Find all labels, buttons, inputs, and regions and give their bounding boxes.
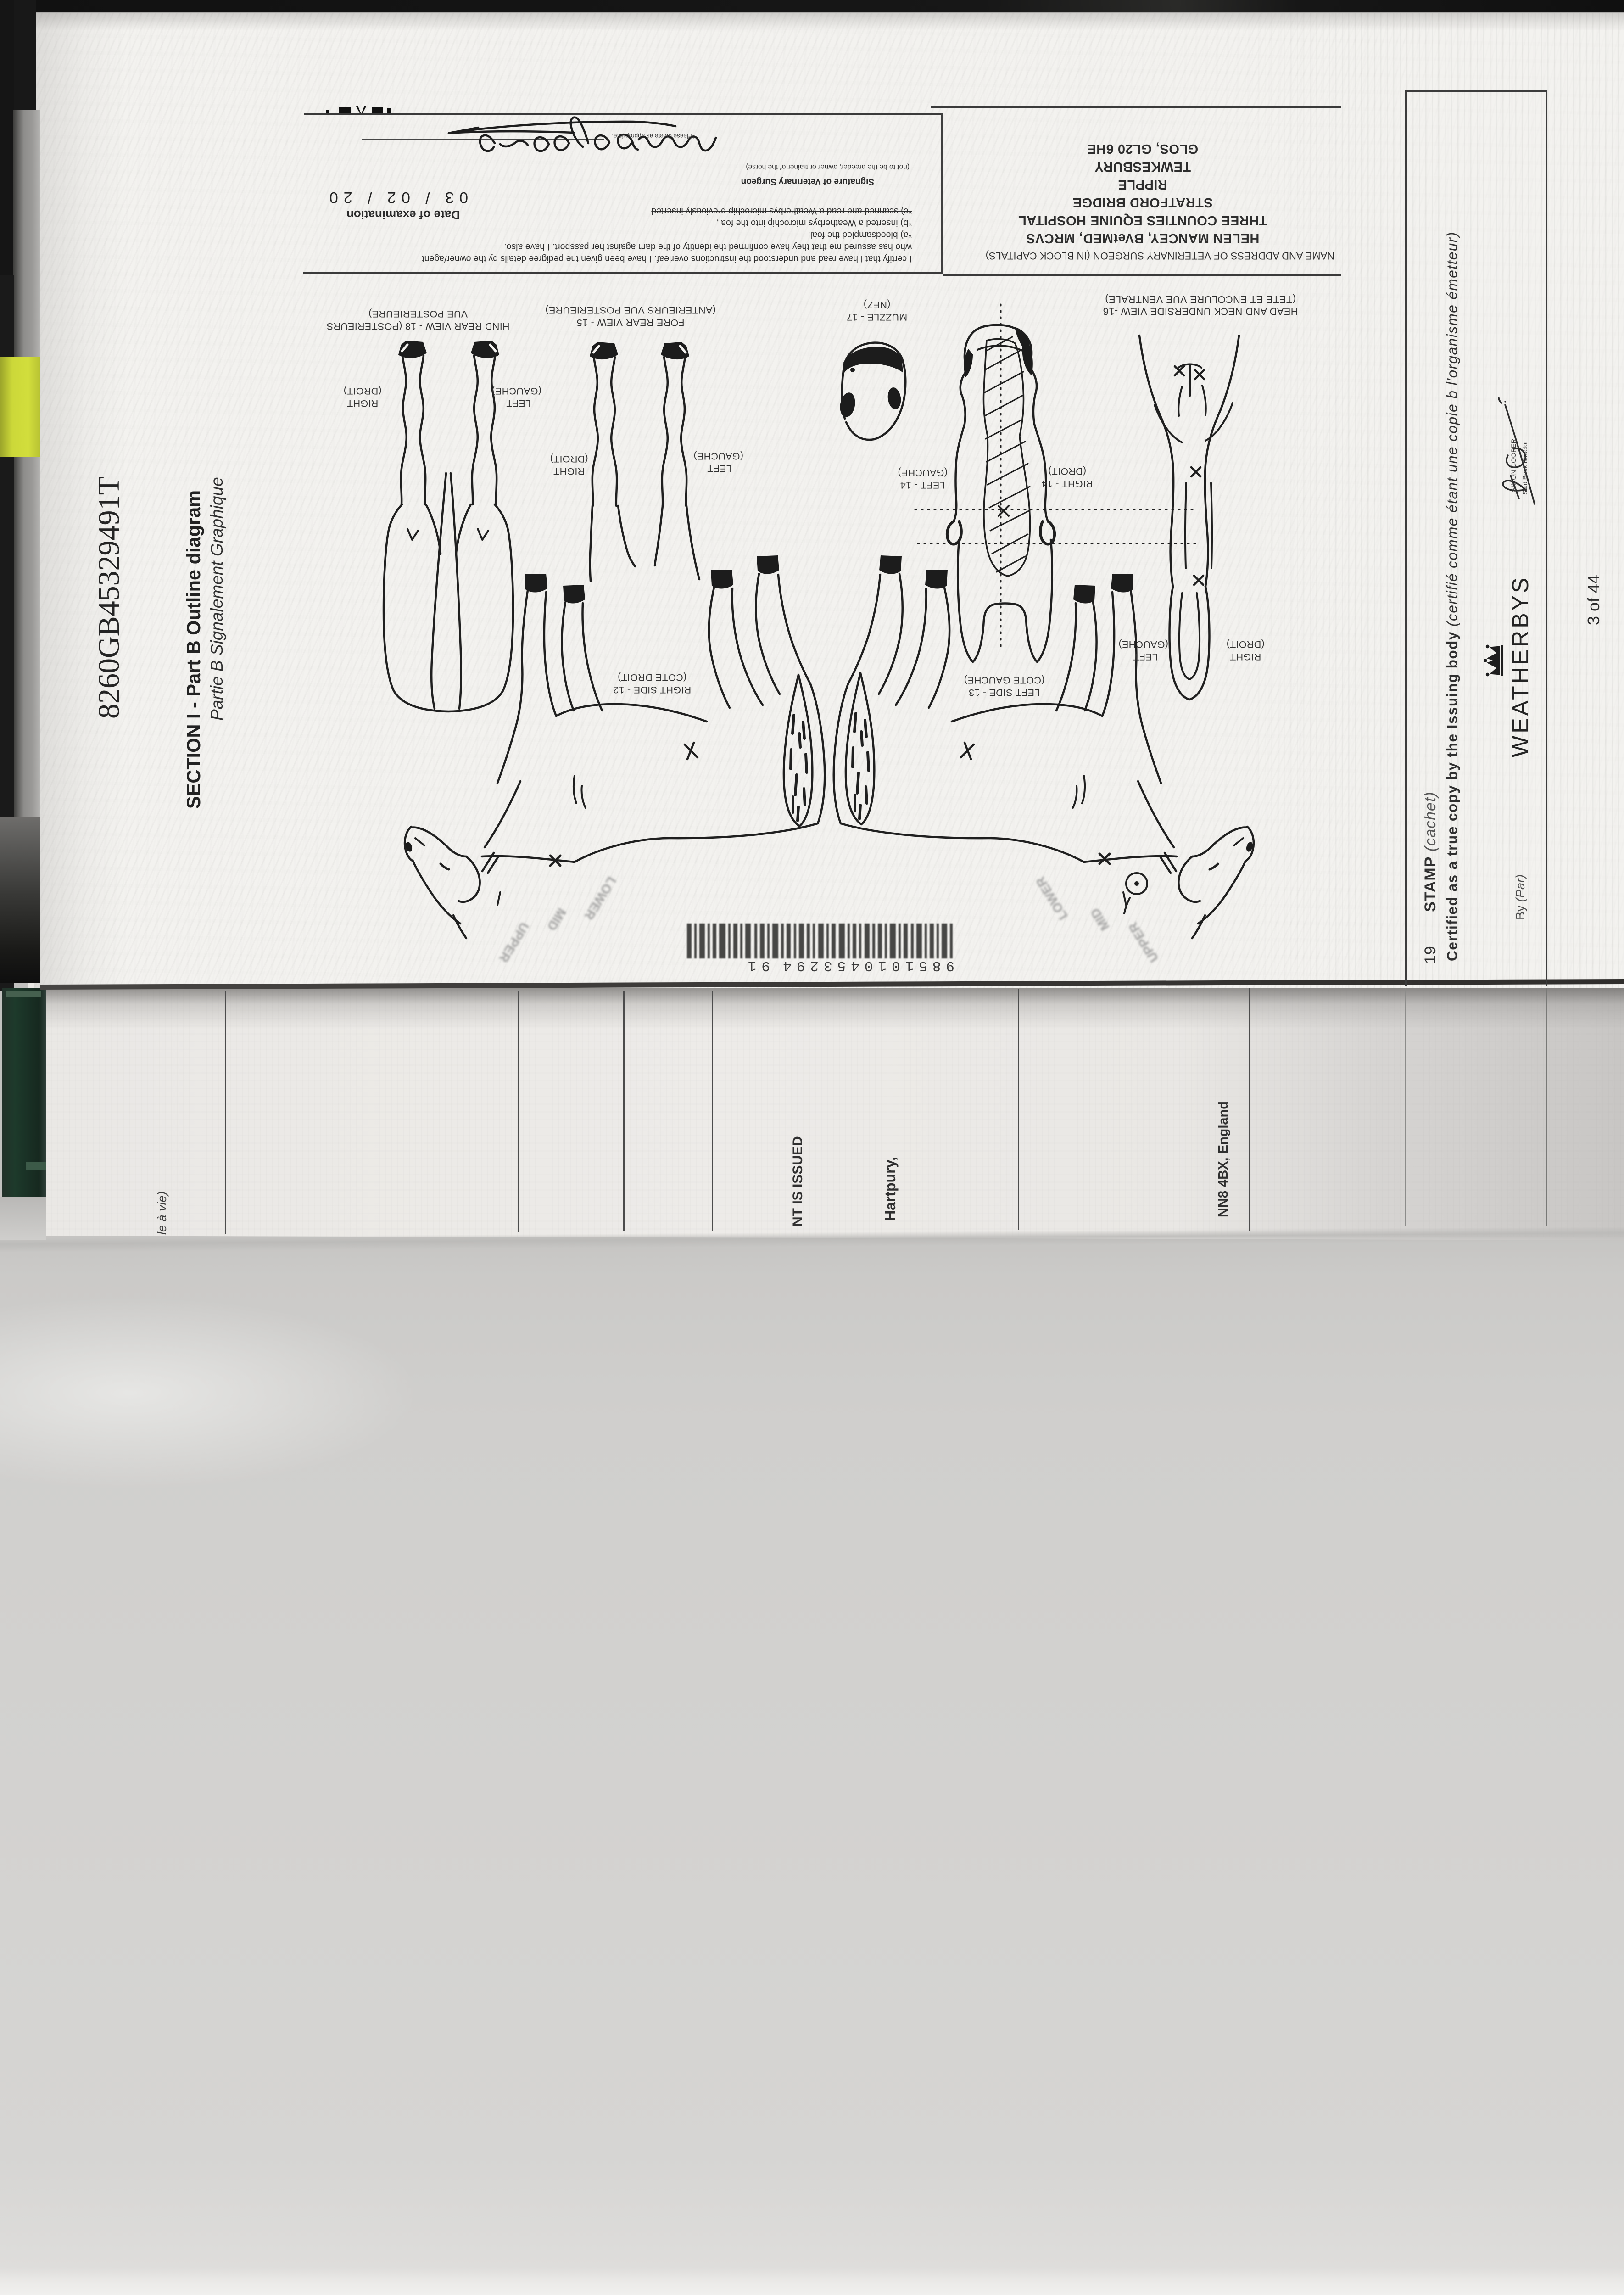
svg-text:UPPER: UPPER <box>1126 920 1161 965</box>
svg-text:LOWER: LOWER <box>581 874 619 923</box>
svg-text:LOWER: LOWER <box>1033 874 1071 923</box>
svg-text:MID: MID <box>544 906 569 933</box>
svg-text:MID: MID <box>1088 906 1112 933</box>
svg-text:UPPER: UPPER <box>496 920 531 965</box>
